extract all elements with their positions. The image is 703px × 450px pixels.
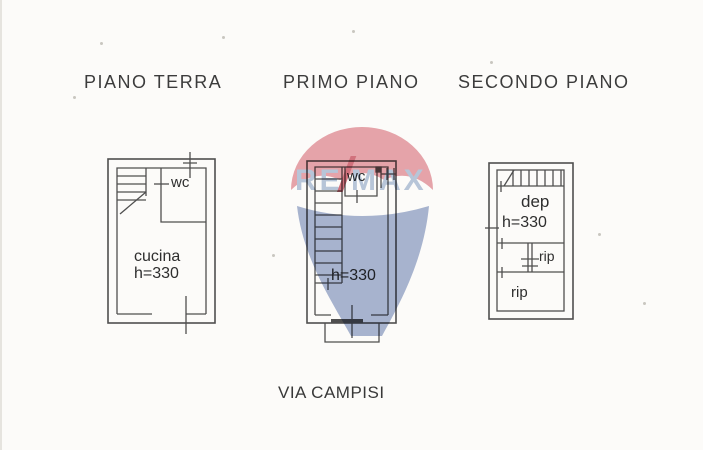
second-middle-partition	[521, 243, 539, 272]
second-closet1-label: rip	[539, 249, 555, 264]
ground-wc-label: wc	[171, 175, 189, 191]
scan-speck	[272, 254, 275, 257]
ground-height-label: h=330	[134, 266, 179, 283]
floorplan-document: PIANO TERRA PRIMO PIANO SECONDO PIANO	[0, 0, 703, 450]
street-name: VIA CAMPISI	[278, 383, 385, 403]
ground-kitchen-label: cucina	[134, 249, 180, 266]
second-height-label: h=330	[502, 215, 547, 232]
first-wc-label: wc	[347, 169, 365, 185]
scan-speck	[352, 30, 355, 33]
ground-floor-plan	[108, 152, 215, 334]
scan-speck	[100, 42, 103, 45]
scan-speck	[490, 61, 493, 64]
scan-speck	[222, 36, 225, 39]
second-closet2-label: rip	[511, 285, 528, 301]
scan-speck	[598, 233, 601, 236]
ground-stairs	[117, 168, 146, 214]
first-height-label: h=330	[331, 268, 376, 285]
second-stairs	[497, 170, 564, 192]
first-window-mark	[376, 167, 396, 188]
second-storage-label: dep	[521, 193, 549, 211]
scan-speck	[73, 96, 76, 99]
first-floor-plan	[307, 161, 396, 342]
scan-speck	[643, 302, 646, 305]
second-floor-plan	[485, 163, 573, 319]
first-outer-wall	[307, 161, 396, 323]
